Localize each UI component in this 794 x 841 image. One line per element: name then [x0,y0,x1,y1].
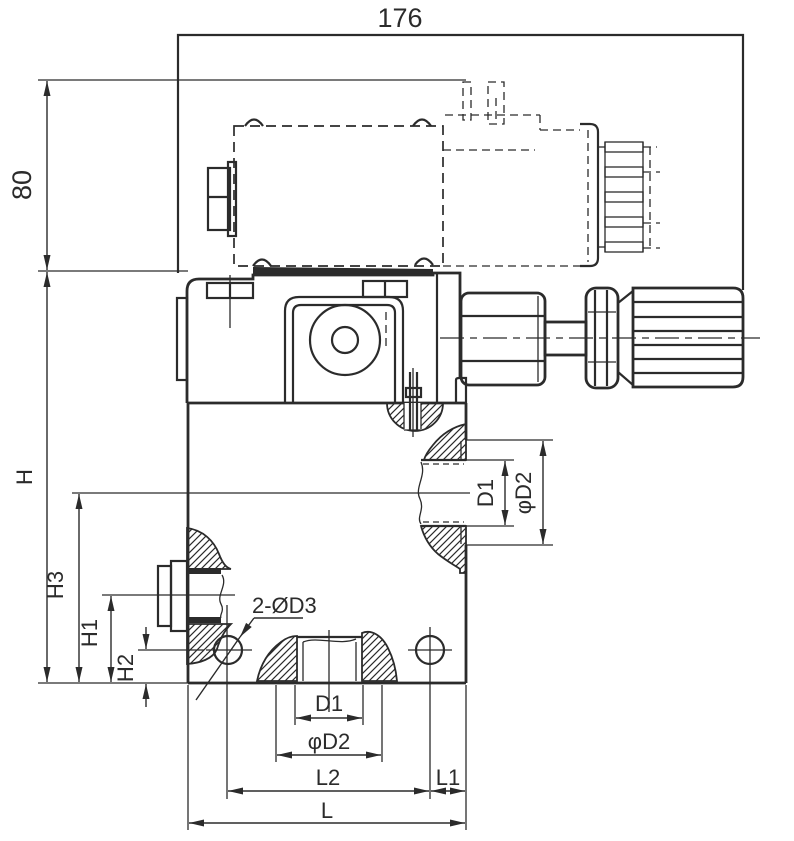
dim-label-l: L [321,798,333,823]
cable-gland-fins [597,142,660,252]
dim-bottom: D1 φD2 L2 L1 L [188,685,466,830]
dim-label-side-d1: D1 [473,479,498,507]
solenoid-hex-end [208,162,236,236]
dim-label-176: 176 [377,3,422,33]
screw-dome-bottom-left-icon [253,260,271,267]
dim-heights: H H3 H1 H2 [12,272,470,707]
dim-label-h: H [12,469,37,485]
dim-overall-width: 176 [178,3,743,290]
dim-side-port: D1 φD2 [466,440,553,545]
dim-label-h2: H2 [113,654,138,682]
left-port-plug [158,528,231,664]
screw-dome-top-right-icon [413,120,431,127]
dim-label-side-d2: φD2 [511,472,536,514]
override-pin-circle [332,327,358,353]
dim-label-h1: H1 [77,619,102,647]
terminal-pins [463,82,504,124]
connector-cap [580,124,598,266]
adjuster-hex-nut [461,293,545,385]
drawing-canvas: 176 80 [0,0,794,841]
side-plate [177,298,187,380]
dim-label-bolt-holes: 2-ØD3 [252,593,317,618]
screw-dome-top-left-icon [245,120,263,127]
dim-label-bottom-d1: D1 [315,691,343,716]
screw-dome-bottom-right-icon [415,259,433,266]
valve-technical-drawing: 176 80 [0,0,794,841]
dim-label-l2: L2 [316,765,340,790]
dim-label-h3: H3 [43,571,68,599]
dim-label-bottom-d2: φD2 [308,729,350,754]
central-boss [285,297,403,403]
dim-label-80: 80 [7,170,37,200]
pressure-adjuster [440,288,760,388]
din-connector [443,115,660,266]
side-port-section [418,424,466,573]
override-boss-circle [310,305,380,375]
valve-body-upper [177,267,466,437]
dim-label-l1: L1 [436,765,460,790]
solenoid-assembly-phantom [208,82,660,266]
solenoid-coil-outline [234,126,443,266]
